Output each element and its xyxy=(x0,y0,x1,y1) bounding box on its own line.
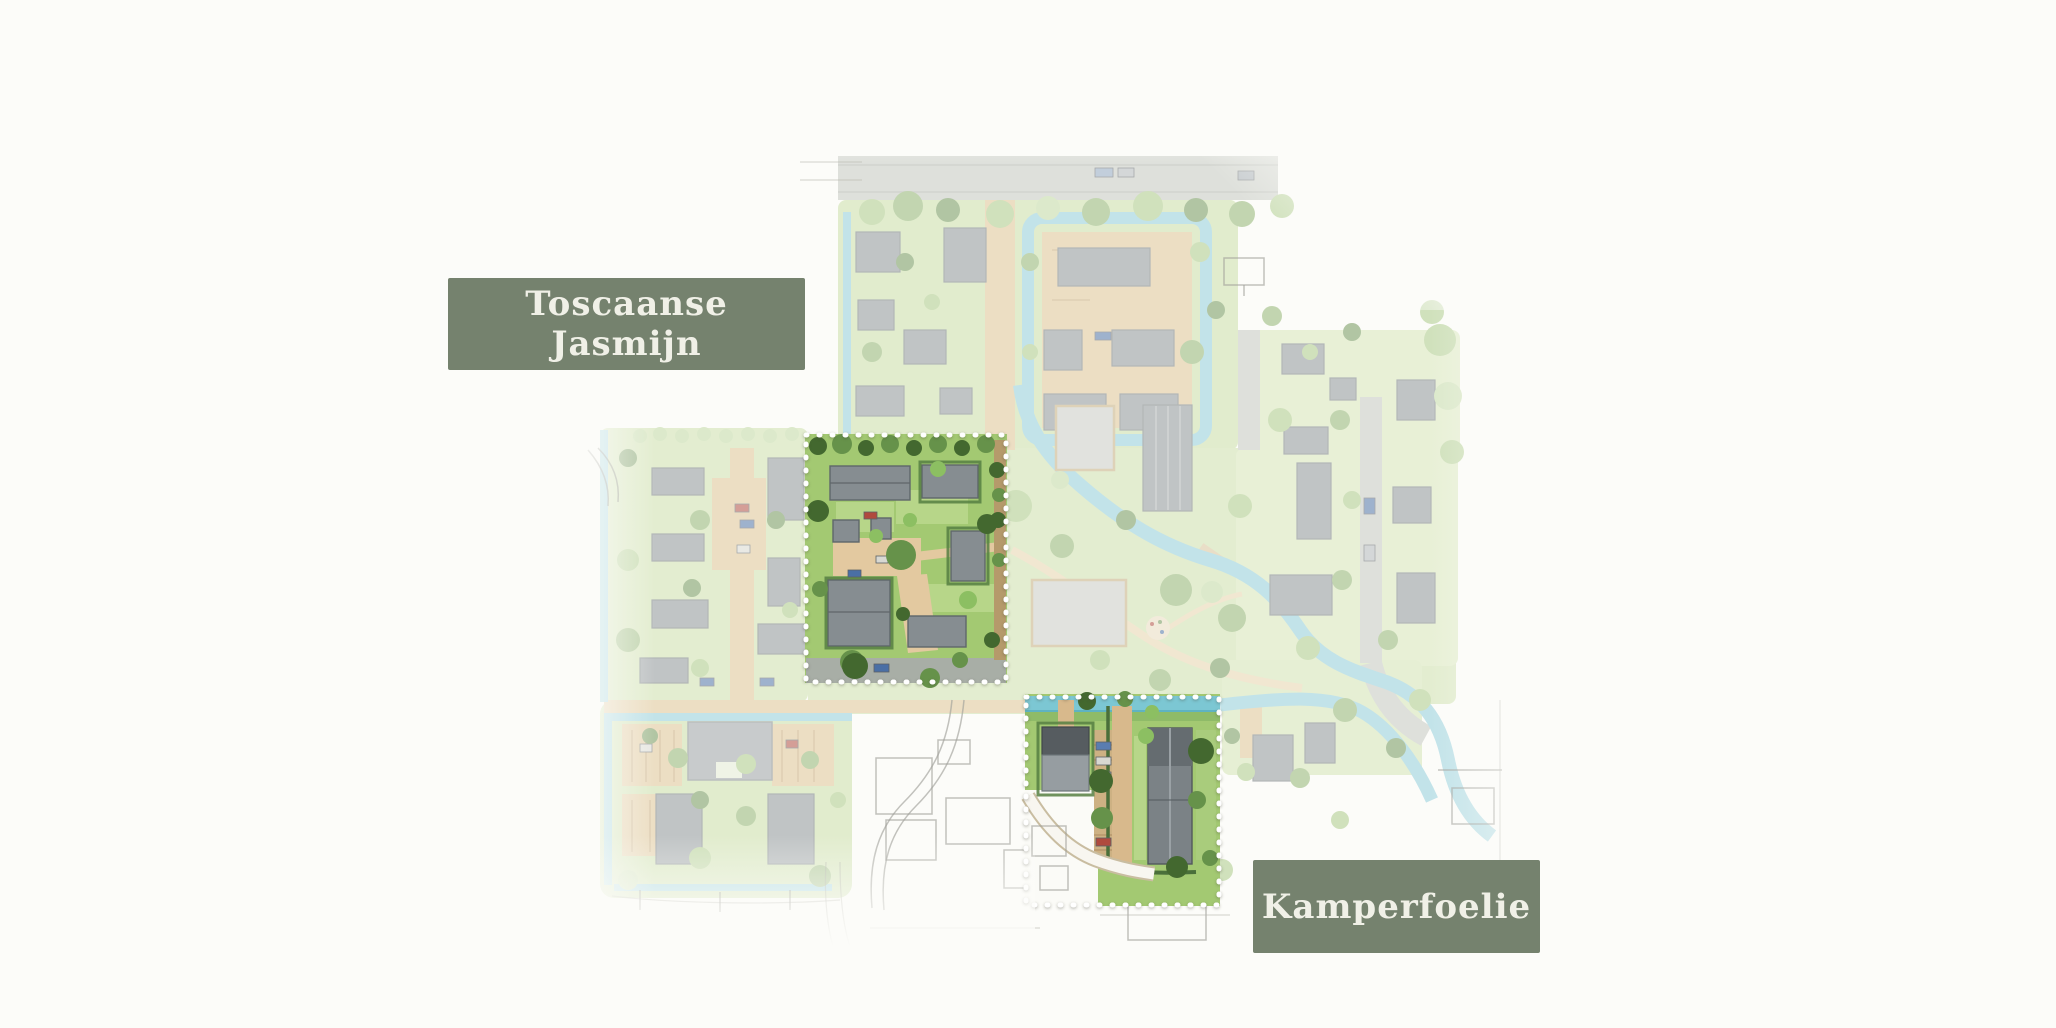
plot-hotspot-kamperfoelie[interactable] xyxy=(1026,696,1220,907)
site-plan: Toscaanse Jasmijn Kamperfoelie xyxy=(0,0,2056,1028)
plot-label-text-toscaanse-jasmijn: Toscaanse Jasmijn xyxy=(448,284,805,364)
plot-label-text-kamperfoelie: Kamperfoelie xyxy=(1262,887,1531,927)
plot-label-toscaanse-jasmijn[interactable]: Toscaanse Jasmijn xyxy=(448,278,805,370)
plot-hotspot-toscaanse-jasmijn[interactable] xyxy=(806,434,1007,683)
plot-label-kamperfoelie[interactable]: Kamperfoelie xyxy=(1253,860,1540,953)
